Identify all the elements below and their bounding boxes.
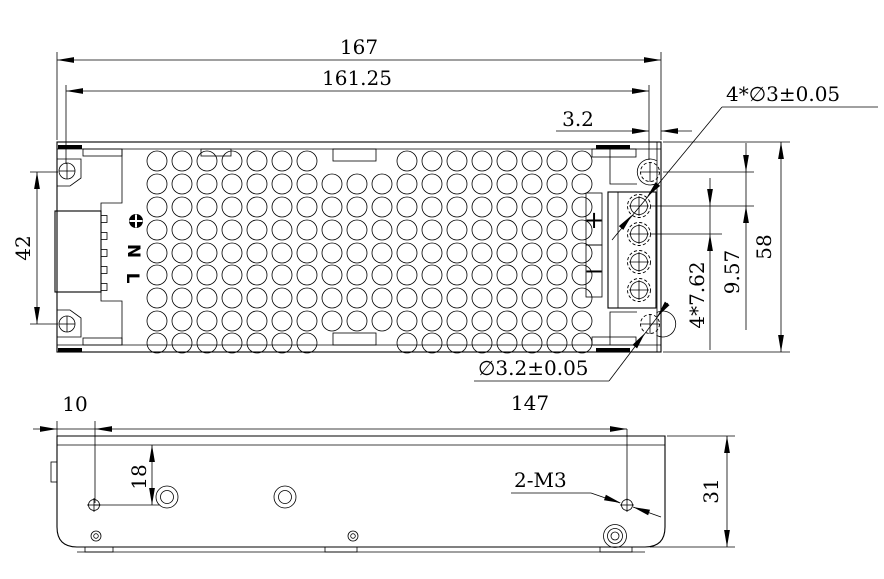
side-view bbox=[51, 436, 665, 552]
side-outline bbox=[57, 436, 665, 547]
mounting-hole-top-right bbox=[610, 149, 660, 185]
side-view-dimensions: 10 147 18 31 2-M3 bbox=[33, 391, 735, 547]
dim-hole-to-first-terminal: 9.57 bbox=[720, 250, 744, 295]
output-terminal-block: + − bbox=[584, 192, 656, 308]
dim-mounting-hole-dia: ∅3.2±0.05 bbox=[478, 356, 589, 380]
dim-terminal-pitch: 4*7.62 bbox=[685, 261, 709, 328]
dim-hole-edge-offset: 3.2 bbox=[562, 107, 594, 131]
case-outline bbox=[57, 142, 661, 352]
mounting-screw-bottom-left bbox=[57, 310, 81, 337]
psu-dimension-drawing: + − N L bbox=[0, 0, 884, 579]
base-holes bbox=[91, 486, 627, 548]
technical-drawing-page: + − N L bbox=[0, 0, 884, 579]
dim-overall-width: 167 bbox=[340, 35, 378, 59]
dim-overall-height: 31 bbox=[699, 478, 723, 503]
top-view-dimensions: 167 161.25 3.2 42 58 9.57 4*7.62 4*∅3±0.… bbox=[11, 35, 878, 381]
dim-overall-depth: 58 bbox=[752, 234, 776, 259]
ground-screw-icon bbox=[129, 214, 143, 228]
mounting-screw-top-left bbox=[57, 159, 81, 186]
dim-mounting-hole-vspan: 42 bbox=[11, 235, 35, 260]
dim-screw-thread: 2-M3 bbox=[514, 468, 567, 492]
dim-screw-span: 147 bbox=[511, 391, 549, 415]
dim-mounting-hole-span: 161.25 bbox=[322, 66, 392, 90]
terminal-minus-label: − bbox=[584, 257, 604, 285]
terminal-screws bbox=[628, 195, 651, 302]
top-view: + − N L bbox=[55, 142, 676, 353]
dim-screw-left-offset: 10 bbox=[62, 392, 87, 416]
mounting-hole-bottom-right bbox=[610, 311, 676, 345]
dim-terminal-screw-dia: 4*∅3±0.05 bbox=[726, 82, 840, 106]
vent-hole-grid bbox=[147, 151, 592, 353]
line-label: L bbox=[122, 273, 142, 284]
neutral-label: N bbox=[123, 244, 143, 258]
dim-screw-top-offset: 18 bbox=[127, 464, 151, 489]
terminal-plus-label: + bbox=[584, 206, 604, 234]
